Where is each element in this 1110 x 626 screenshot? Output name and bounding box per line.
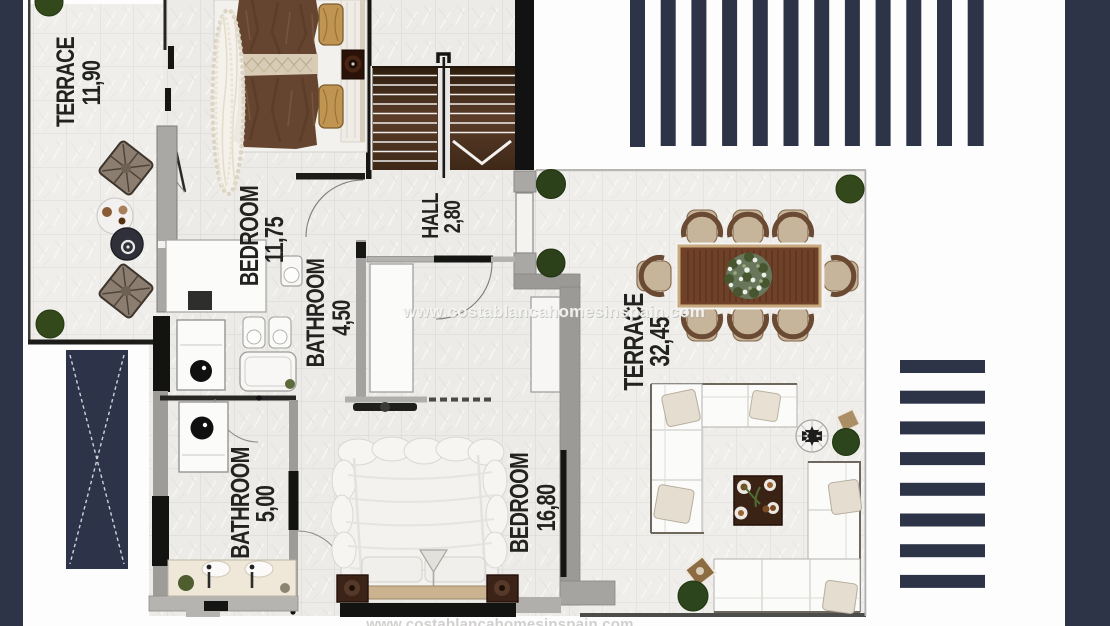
svg-text:5,00: 5,00 [250,486,279,523]
svg-text:www.costablancahomesinspain.co: www.costablancahomesinspain.com [402,302,705,321]
svg-text:16,80: 16,80 [531,484,560,531]
svg-text:TERRACE: TERRACE [52,36,80,127]
svg-text:BATHROOM: BATHROOM [302,259,330,368]
svg-text:BEDROOM: BEDROOM [504,453,533,553]
svg-text:11,90: 11,90 [78,61,106,106]
svg-text:4,50: 4,50 [328,300,356,336]
svg-text:11,75: 11,75 [259,216,288,263]
svg-text:32,45: 32,45 [645,317,675,367]
svg-text:2,80: 2,80 [440,201,466,234]
svg-text:www.costablancahomesinspain.co: www.costablancahomesinspain.com [365,616,633,626]
